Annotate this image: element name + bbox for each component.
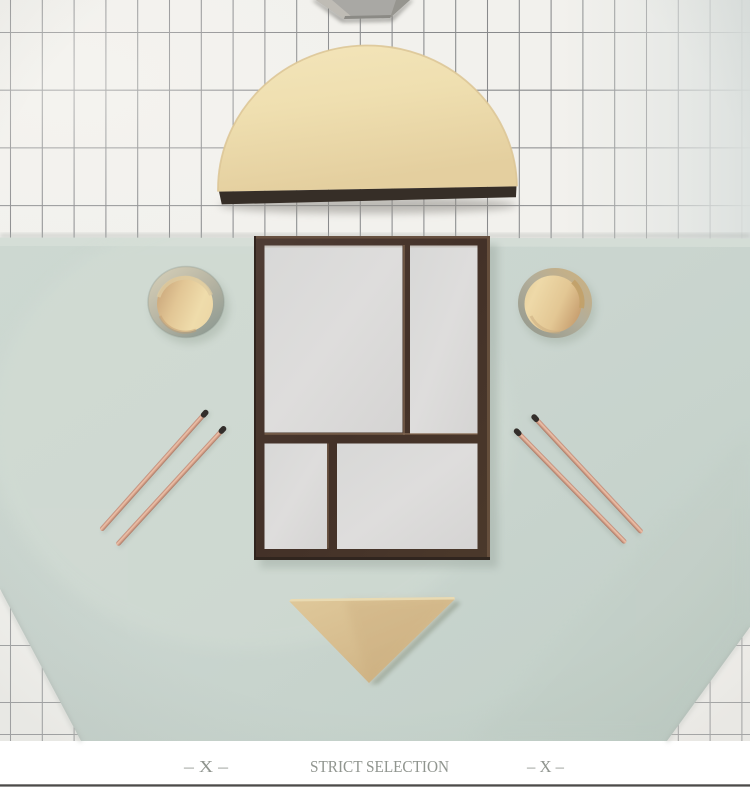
svg-text:STRICT SELECTION: STRICT SELECTION	[310, 757, 449, 776]
svg-text:– X –: – X –	[526, 757, 565, 776]
svg-text:– X –: – X –	[183, 757, 229, 776]
